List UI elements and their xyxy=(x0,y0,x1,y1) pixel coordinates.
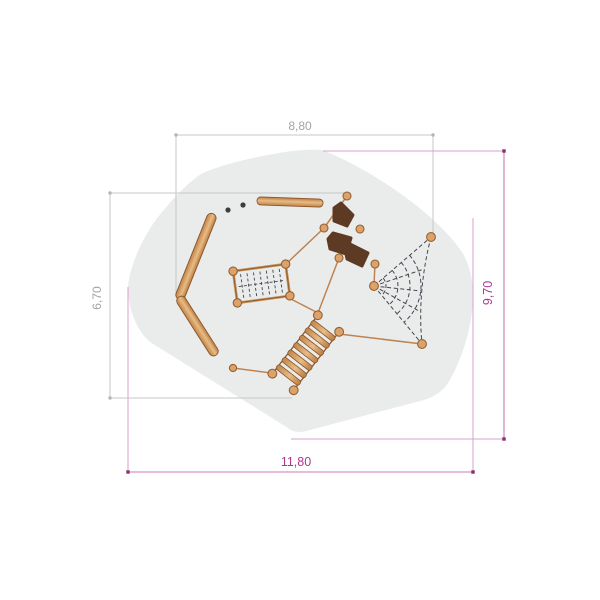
stepping-post xyxy=(335,254,343,262)
web-post xyxy=(418,340,427,349)
web-post xyxy=(427,233,436,242)
stepping-post xyxy=(320,224,328,232)
stepping-post xyxy=(343,192,351,200)
net-post xyxy=(228,266,237,275)
net-post xyxy=(285,291,294,300)
balance-log-icon xyxy=(257,197,323,207)
stepping-post xyxy=(356,225,364,233)
dim-label-right: 9,70 xyxy=(481,281,495,305)
rope-anchor-post xyxy=(229,364,236,371)
stump-dot xyxy=(225,207,230,212)
web-post xyxy=(370,282,379,291)
playground-plan-canvas: 8,80 6,70 9,70 11,80 xyxy=(0,0,600,600)
stepping-post xyxy=(371,260,379,268)
net-post xyxy=(233,298,242,307)
net-post xyxy=(281,259,290,268)
dim-label-left: 6,70 xyxy=(90,286,104,310)
dim-label-bottom: 11,80 xyxy=(281,455,311,469)
plan-drawing: 8,80 6,70 9,70 11,80 xyxy=(0,0,600,600)
dim-label-top: 8,80 xyxy=(288,119,312,133)
stump-dot xyxy=(240,202,245,207)
